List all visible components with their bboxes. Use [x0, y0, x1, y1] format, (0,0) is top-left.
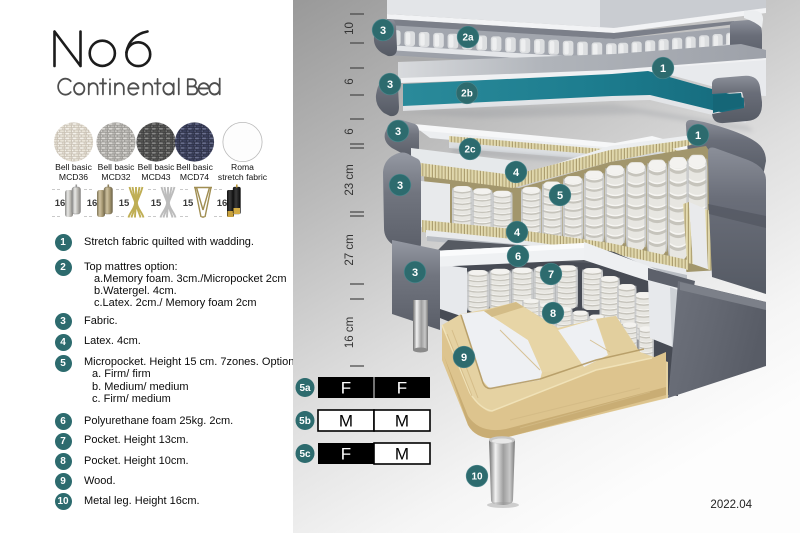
svg-text:16: 16 — [217, 198, 228, 209]
svg-text:7: 7 — [548, 269, 554, 281]
svg-text:15: 15 — [151, 198, 162, 209]
svg-text:F: F — [397, 379, 407, 398]
svg-text:23 cm: 23 cm — [344, 164, 356, 195]
svg-text:3: 3 — [395, 126, 401, 138]
svg-text:4: 4 — [514, 227, 521, 239]
svg-text:4: 4 — [513, 167, 520, 179]
svg-text:15: 15 — [119, 198, 130, 209]
svg-text:9: 9 — [461, 352, 467, 364]
svg-text:15: 15 — [183, 198, 194, 209]
svg-text:2b: 2b — [461, 89, 473, 100]
svg-text:1: 1 — [660, 63, 666, 75]
svg-text:M: M — [395, 412, 409, 431]
svg-text:6: 6 — [515, 251, 521, 263]
svg-text:27 cm: 27 cm — [344, 234, 356, 265]
svg-text:5b: 5b — [299, 416, 311, 427]
svg-text:16: 16 — [87, 198, 98, 209]
svg-text:2022.04: 2022.04 — [710, 499, 752, 511]
svg-text:8: 8 — [550, 308, 556, 320]
svg-text:5: 5 — [557, 190, 563, 202]
svg-text:F: F — [341, 445, 351, 464]
svg-text:6: 6 — [344, 78, 356, 84]
svg-text:16: 16 — [55, 198, 66, 209]
svg-text:10: 10 — [471, 472, 483, 483]
svg-text:3: 3 — [412, 267, 418, 279]
svg-text:3: 3 — [380, 25, 386, 37]
svg-text:10: 10 — [344, 22, 356, 35]
svg-text:6: 6 — [344, 128, 356, 134]
svg-text:M: M — [339, 412, 353, 431]
svg-text:2a: 2a — [462, 33, 474, 44]
svg-text:5a: 5a — [299, 383, 311, 394]
svg-text:2c: 2c — [464, 145, 476, 156]
svg-text:1: 1 — [695, 130, 701, 142]
svg-text:5c: 5c — [299, 449, 311, 460]
svg-text:M: M — [395, 445, 409, 464]
svg-text:3: 3 — [397, 180, 403, 192]
svg-text:F: F — [341, 379, 351, 398]
svg-text:16 cm: 16 cm — [344, 317, 356, 348]
svg-text:3: 3 — [387, 79, 393, 91]
